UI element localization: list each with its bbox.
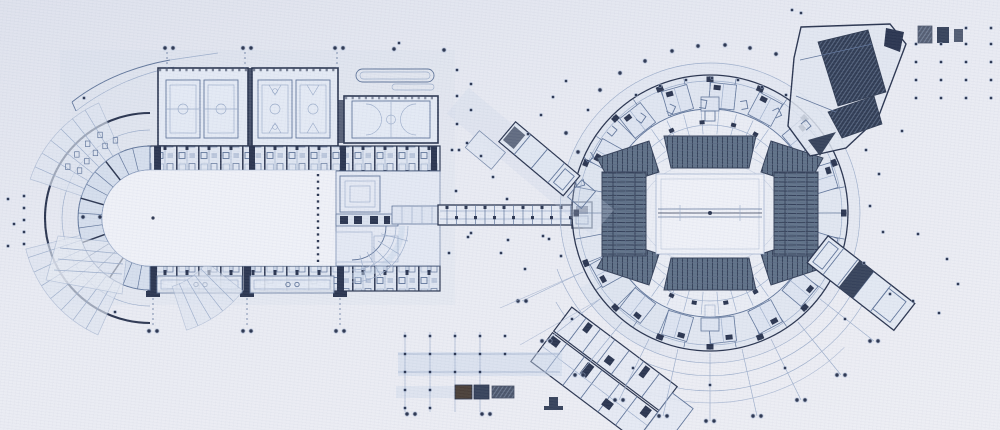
column-dot-grid-sw [396, 332, 562, 417]
courtyard [102, 170, 336, 266]
ne-stand-wedge [788, 8, 963, 156]
floor-plan-drawing [0, 0, 1000, 430]
ne-block [937, 27, 949, 43]
east-block [318, 171, 440, 282]
pier-base [549, 397, 558, 406]
ne-block [918, 26, 932, 43]
sw-dark-block [455, 385, 472, 399]
tribune-east [774, 172, 818, 256]
far-west-dots [6, 194, 26, 248]
scanned-plan-page [0, 0, 1000, 430]
sw-dark-block [474, 385, 489, 399]
locker-band-north [148, 146, 440, 171]
arena-floor [656, 174, 764, 254]
sw-hatched-block [492, 386, 514, 398]
ne-block [954, 29, 963, 42]
arena-center-point [708, 211, 712, 215]
